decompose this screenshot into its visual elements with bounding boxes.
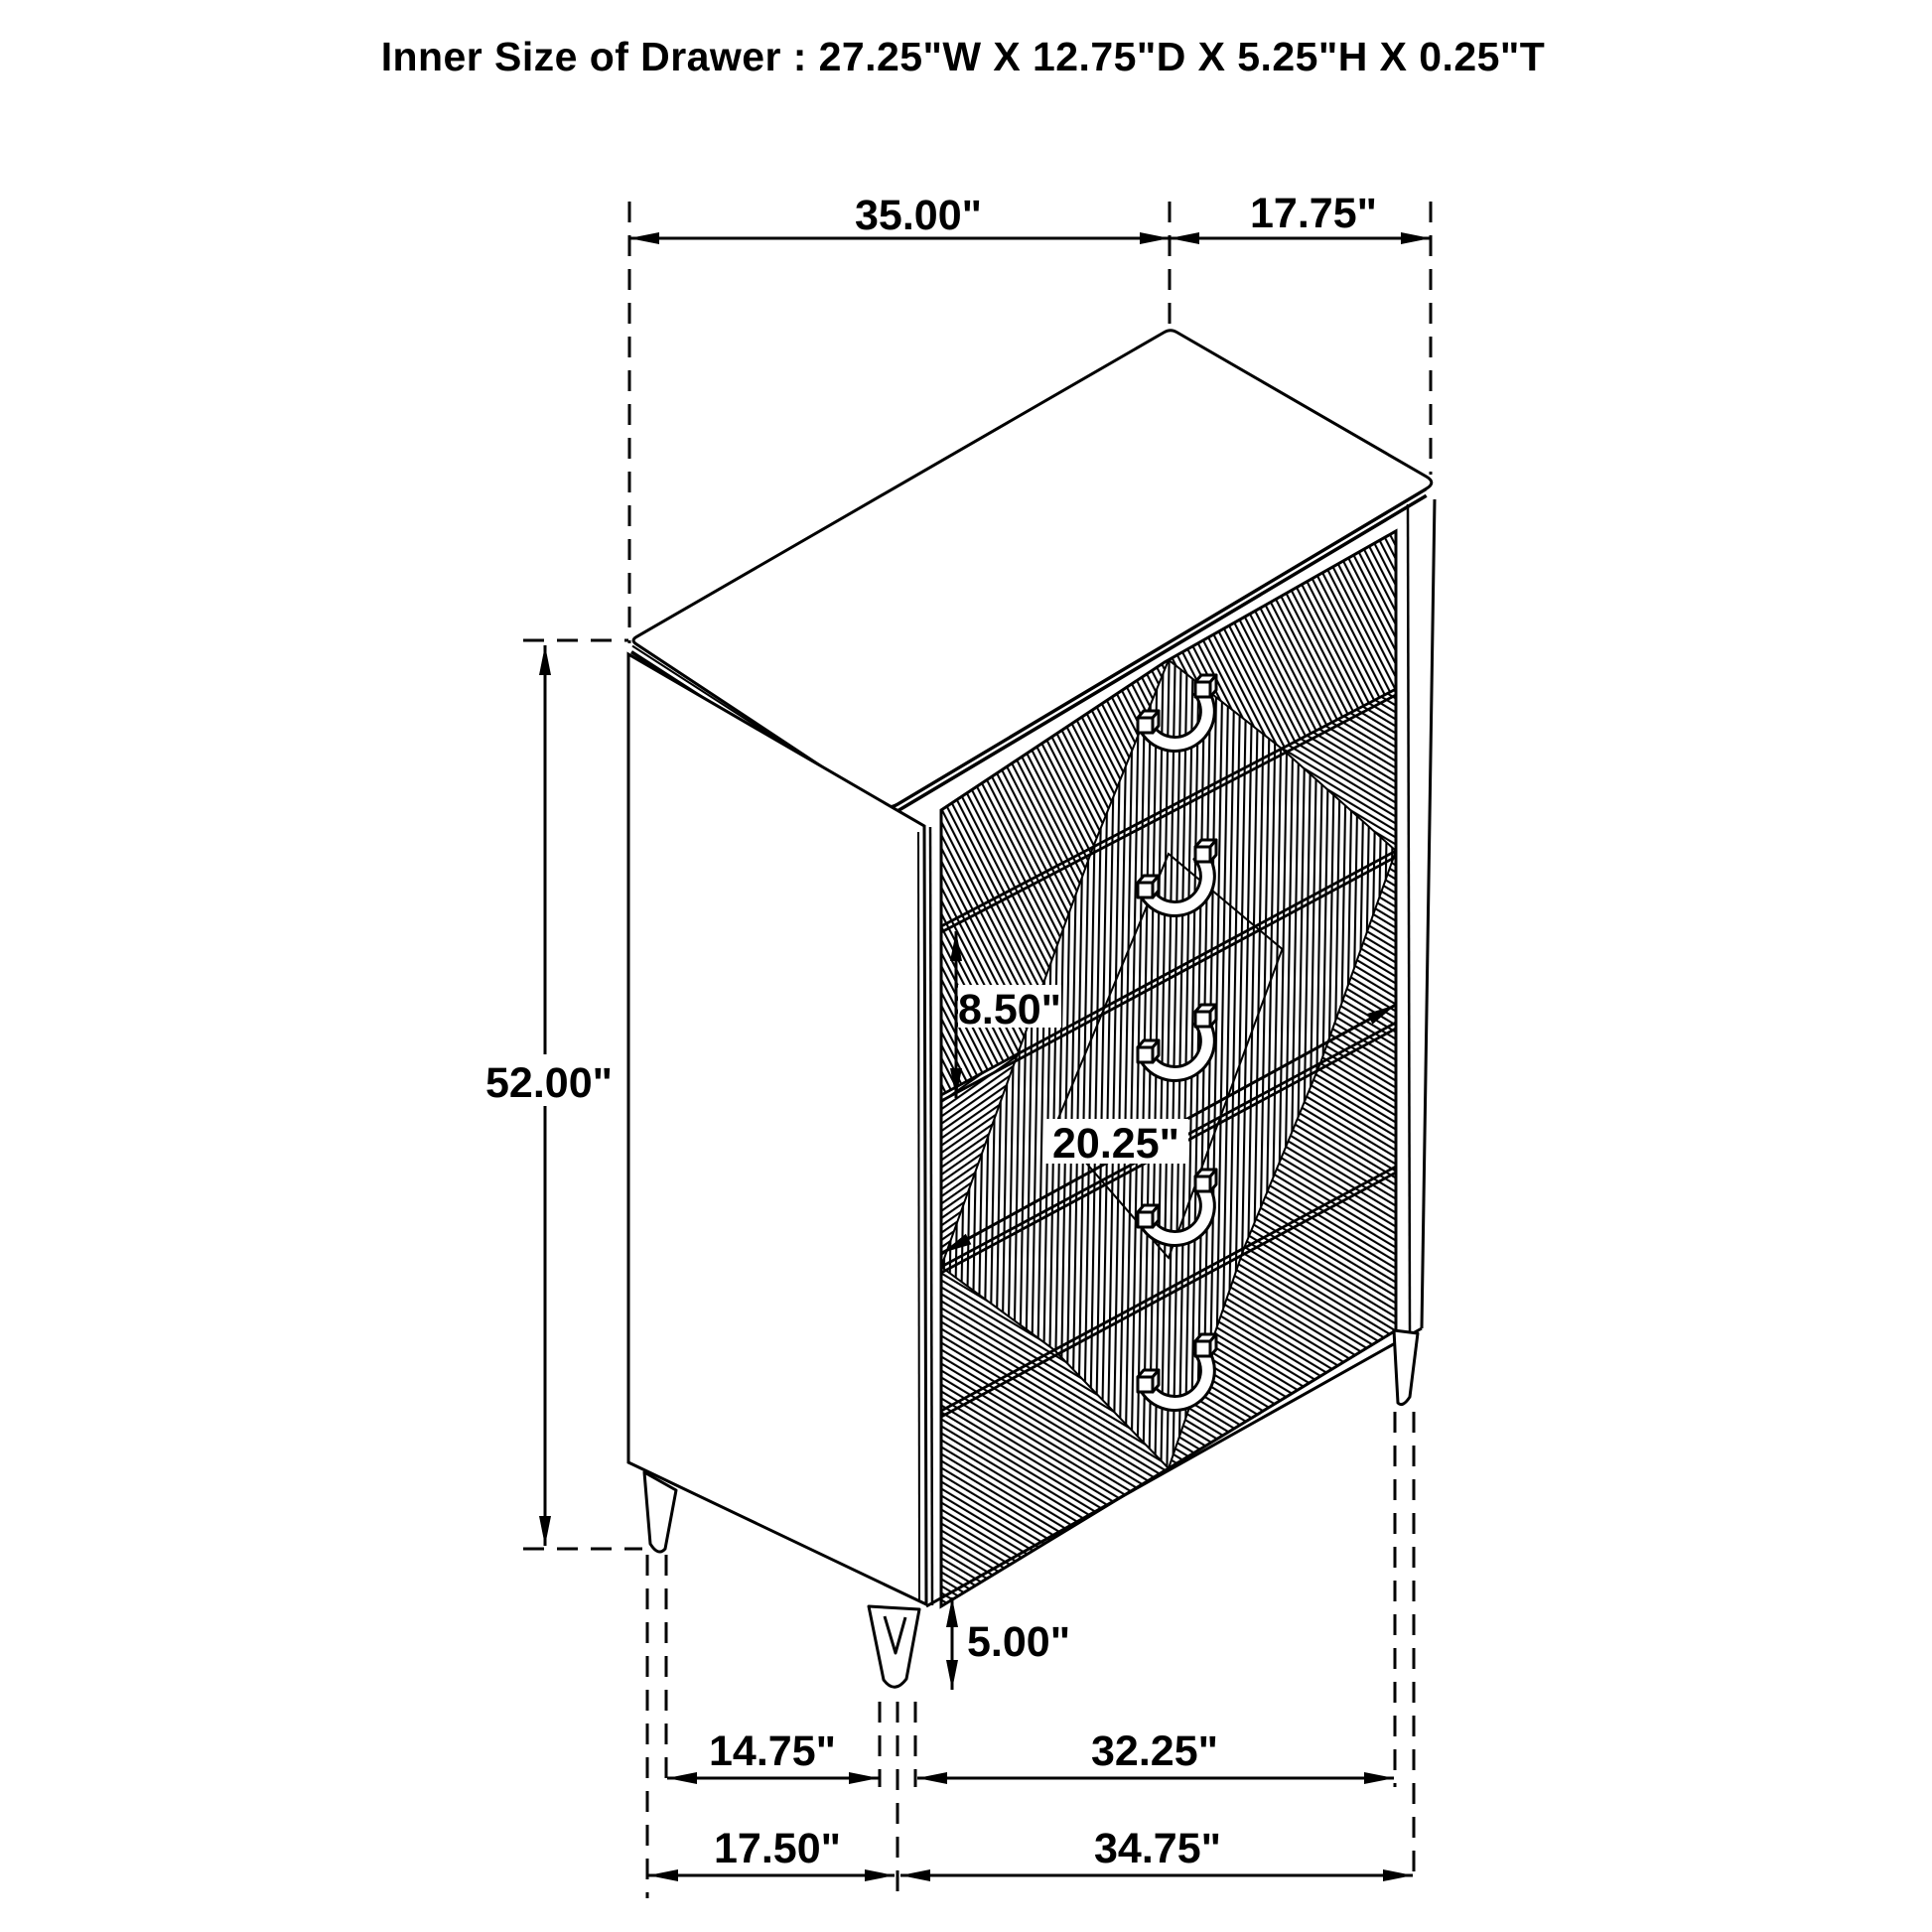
svg-text:17.75": 17.75" <box>1250 190 1377 237</box>
svg-text:17.50": 17.50" <box>714 1825 841 1872</box>
svg-text:52.00": 52.00" <box>485 1059 613 1107</box>
svg-text:5.00": 5.00" <box>967 1618 1070 1666</box>
svg-text:20.25": 20.25" <box>1052 1120 1179 1168</box>
svg-text:8.50": 8.50" <box>958 986 1061 1034</box>
svg-text:Inner Size of Drawer : 27.25"W: Inner Size of Drawer : 27.25"W X 12.75"D… <box>381 34 1546 79</box>
svg-text:34.75": 34.75" <box>1094 1825 1221 1872</box>
svg-text:14.75": 14.75" <box>709 1727 836 1775</box>
svg-text:32.25": 32.25" <box>1091 1727 1218 1775</box>
svg-text:35.00": 35.00" <box>855 192 982 239</box>
